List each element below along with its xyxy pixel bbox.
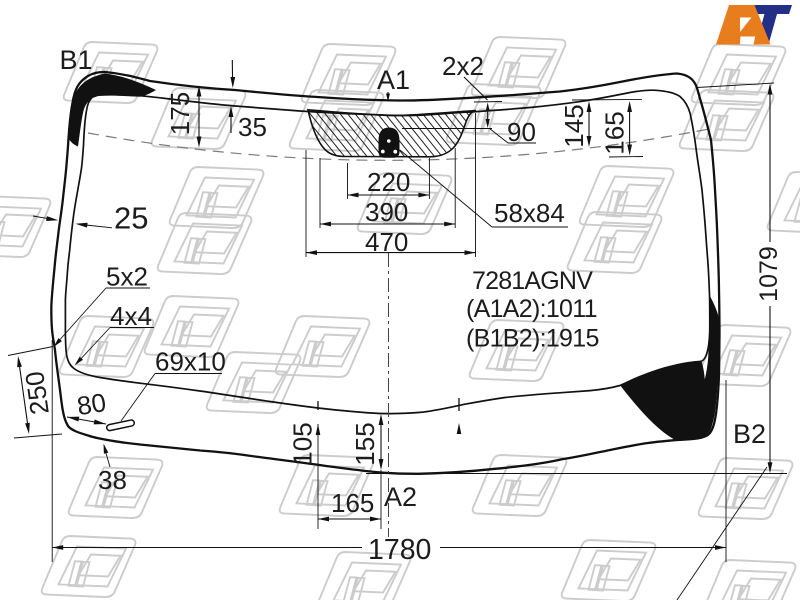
svg-text:175: 175 bbox=[165, 92, 195, 135]
svg-text:B1: B1 bbox=[60, 45, 93, 75]
svg-text:4x4: 4x4 bbox=[110, 301, 152, 331]
svg-text:390: 390 bbox=[365, 197, 408, 227]
svg-text:2x2: 2x2 bbox=[442, 51, 484, 81]
svg-text:220: 220 bbox=[367, 167, 410, 197]
svg-text:35: 35 bbox=[238, 112, 267, 142]
svg-text:5x2: 5x2 bbox=[106, 262, 148, 292]
svg-text:250: 250 bbox=[19, 369, 55, 416]
svg-text:470: 470 bbox=[365, 227, 408, 257]
svg-text:90: 90 bbox=[507, 117, 536, 147]
svg-text:105: 105 bbox=[288, 422, 318, 465]
svg-text:A1: A1 bbox=[377, 65, 410, 95]
svg-text:B2: B2 bbox=[733, 419, 766, 449]
svg-text:38: 38 bbox=[98, 465, 127, 495]
svg-text:58x84: 58x84 bbox=[494, 198, 565, 228]
svg-text:(B1B2):1915: (B1B2):1915 bbox=[466, 325, 599, 353]
svg-text:145: 145 bbox=[559, 104, 589, 147]
svg-text:1079: 1079 bbox=[755, 246, 783, 302]
svg-text:25: 25 bbox=[114, 201, 148, 236]
svg-text:1780: 1780 bbox=[368, 534, 431, 566]
svg-text:165: 165 bbox=[331, 488, 374, 518]
svg-text:A2: A2 bbox=[384, 482, 417, 512]
svg-text:155: 155 bbox=[350, 422, 380, 465]
svg-text:80: 80 bbox=[75, 387, 108, 421]
svg-text:165: 165 bbox=[600, 111, 630, 154]
svg-text:(A1A2):1011: (A1A2):1011 bbox=[466, 295, 597, 323]
svg-text:69x10: 69x10 bbox=[155, 347, 226, 377]
svg-text:7281AGNV: 7281AGNV bbox=[472, 267, 593, 295]
